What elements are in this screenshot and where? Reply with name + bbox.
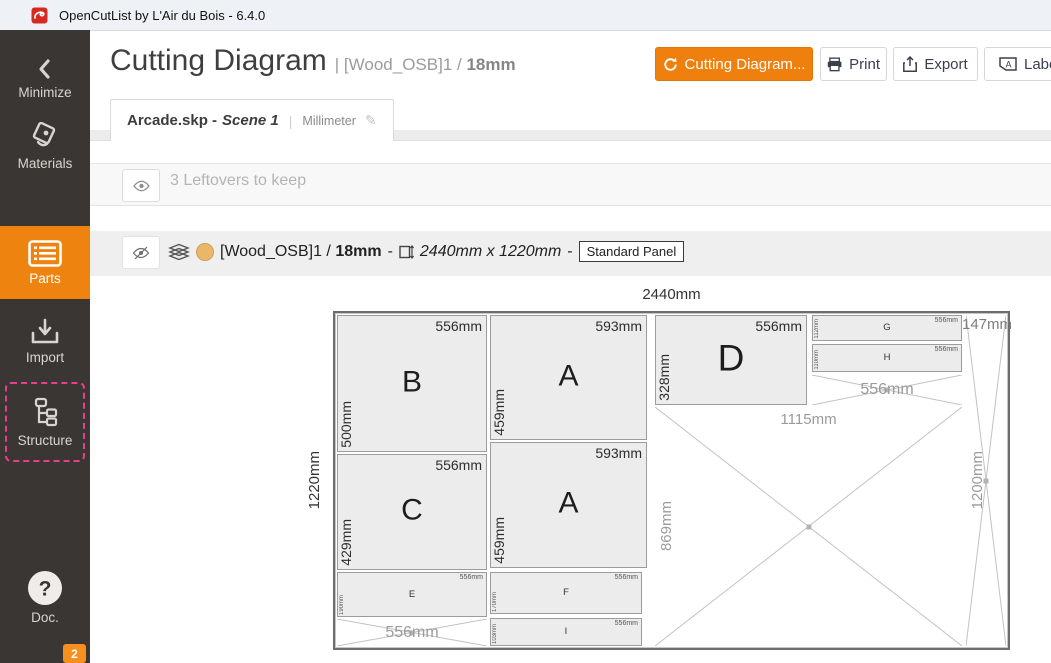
sheet-good-icon — [168, 243, 190, 260]
import-icon — [30, 318, 60, 346]
svg-text:?: ? — [39, 578, 52, 601]
part-height-label: 110mm — [814, 350, 820, 370]
material-name: [Wood_OSB]1 / 18mm — [220, 243, 382, 261]
chevron-left-icon — [33, 57, 57, 81]
panel-size-icon — [399, 244, 414, 260]
dash: - — [567, 243, 572, 261]
sidebar-item-import[interactable]: Import — [0, 318, 90, 365]
part-letter: A — [558, 487, 578, 521]
material-swatch — [196, 243, 214, 261]
sidebar-item-materials[interactable]: Materials — [0, 122, 90, 171]
center-dot — [806, 524, 811, 529]
part-width-label: 556mm — [935, 317, 958, 324]
sidebar-item-structure[interactable]: Structure — [5, 382, 85, 462]
part-letter: D — [718, 337, 745, 379]
leftover-width-label: 556mm — [385, 624, 438, 642]
sidebar-item-minimize[interactable]: Minimize — [0, 57, 90, 100]
svg-text:A: A — [1005, 60, 1011, 70]
part-width-label: 556mm — [615, 574, 638, 581]
part-width-label: 556mm — [460, 574, 483, 581]
part-f-5: 556mm170mmF — [490, 572, 642, 614]
part-height-label: 170mm — [492, 592, 498, 612]
print-button[interactable]: Print — [820, 47, 887, 81]
leftover-height-label: 869mm — [658, 407, 675, 646]
part-e-2: 556mm190mmE — [337, 572, 487, 617]
notification-badge: 2 — [63, 644, 86, 663]
leftovers-visibility-button[interactable] — [122, 169, 160, 202]
tab-unit: Millimeter — [302, 114, 355, 128]
tab-scene: Scene 1 — [222, 112, 279, 129]
part-height-label: 328mm — [656, 354, 672, 401]
leftover-area-3: 147mm1200mm — [966, 315, 1006, 646]
opencutlist-logo-icon — [31, 7, 48, 24]
parts-list-icon — [28, 240, 62, 267]
window-title: OpenCutList by L'Air du Bois - 6.4.0 — [59, 8, 265, 23]
os-title-bar: OpenCutList by L'Air du Bois - 6.4.0 — [0, 0, 1051, 31]
part-c-1: 556mm429mmC — [337, 454, 487, 570]
part-letter: H — [884, 352, 891, 363]
materials-icon — [28, 122, 62, 152]
part-a-3: 593mm459mmA — [490, 315, 647, 440]
leftover-width-label: 1115mm — [780, 411, 836, 428]
question-circle-icon: ? — [27, 570, 63, 606]
part-d-7: 556mm328mmD — [655, 315, 807, 405]
part-height-label: 459mm — [491, 389, 507, 436]
sidebar-item-label: Parts — [0, 271, 90, 286]
part-width-label: 556mm — [755, 318, 802, 334]
part-width-label: 593mm — [595, 318, 642, 334]
part-height-label: 500mm — [338, 401, 354, 448]
tab-arcade-scene1[interactable]: Arcade.skp - Scene 1 | Millimeter ✎ — [110, 99, 394, 141]
labels-button[interactable]: A Labels — [984, 47, 1051, 81]
sheet-visibility-button[interactable] — [122, 236, 160, 269]
part-letter: A — [558, 359, 578, 393]
printer-icon — [827, 57, 842, 72]
sheet-size: 2440mm x 1220mm — [420, 243, 561, 261]
part-height-label: 190mm — [339, 595, 345, 615]
leftover-height-label: 1200mm — [969, 315, 986, 646]
part-height-label: 112mm — [814, 319, 820, 339]
sidebar-item-label: Doc. — [0, 610, 90, 625]
part-b-0: 556mm500mmB — [337, 315, 487, 452]
part-letter: G — [883, 322, 890, 333]
part-g-8: 556mm112mmG — [812, 315, 962, 341]
part-letter: E — [409, 589, 415, 600]
leftovers-count-text: 3 Leftovers to keep — [170, 172, 306, 190]
part-width-label: 556mm — [435, 318, 482, 334]
sheet: 556mm500mmB556mm429mmC556mm190mmE593mm45… — [333, 311, 1010, 650]
part-letter: I — [565, 626, 568, 637]
structure-tree-icon — [29, 397, 61, 429]
leftover-area-2: 1115mm869mm — [655, 407, 962, 646]
cutting-diagram-button[interactable]: Cutting Diagram... — [655, 47, 813, 81]
part-height-label: 429mm — [338, 519, 354, 566]
part-width-label: 556mm — [615, 620, 638, 627]
part-h-9: 556mm110mmH — [812, 344, 962, 372]
refresh-icon — [663, 57, 678, 72]
export-button[interactable]: Export — [893, 47, 978, 81]
eye-slash-icon — [132, 246, 150, 260]
tab-filename: Arcade.skp - — [127, 112, 217, 129]
sidebar-item-label: Import — [0, 350, 90, 365]
sidebar: Minimize Materials Parts Import — [0, 30, 90, 663]
part-a-4: 593mm459mmA — [490, 442, 647, 568]
eye-icon — [133, 180, 150, 192]
sidebar-item-doc[interactable]: ? Doc. — [0, 570, 90, 625]
sidebar-item-label: Structure — [7, 433, 83, 448]
part-width-label: 556mm — [435, 457, 482, 473]
part-height-label: 459mm — [491, 517, 507, 564]
page-subtitle: | [Wood_OSB]1 / 18mm — [335, 55, 516, 74]
part-width-label: 556mm — [935, 346, 958, 353]
part-letter: B — [402, 365, 422, 399]
edit-pencil-icon[interactable]: ✎ — [365, 112, 377, 129]
export-icon — [903, 56, 917, 72]
sheet-header-content: [Wood_OSB]1 / 18mm - 2440mm x 1220mm - S… — [168, 241, 684, 262]
part-width-label: 593mm — [595, 445, 642, 461]
sheet-width-dimension: 2440mm — [333, 286, 1010, 303]
sidebar-item-label: Materials — [0, 156, 90, 171]
leftover-width-label: 556mm — [860, 381, 913, 399]
leftover-area-1: 556mm — [812, 375, 962, 405]
standard-panel-badge: Standard Panel — [579, 241, 685, 262]
labels-icon: A — [999, 57, 1017, 71]
sidebar-item-parts[interactable]: Parts — [0, 226, 90, 299]
page-title: Cutting Diagram| [Wood_OSB]1 / 18mm — [110, 44, 516, 78]
sidebar-item-label: Minimize — [0, 85, 90, 100]
tab-separator: | — [289, 113, 293, 129]
part-letter: F — [563, 587, 569, 598]
sheet-height-dimension: 1220mm — [306, 311, 323, 650]
part-i-6: 556mm103mmI — [490, 618, 642, 646]
part-height-label: 103mm — [492, 624, 498, 644]
leftover-area-0: 556mm — [337, 619, 487, 646]
dash: - — [388, 243, 393, 261]
part-letter: C — [401, 494, 423, 528]
